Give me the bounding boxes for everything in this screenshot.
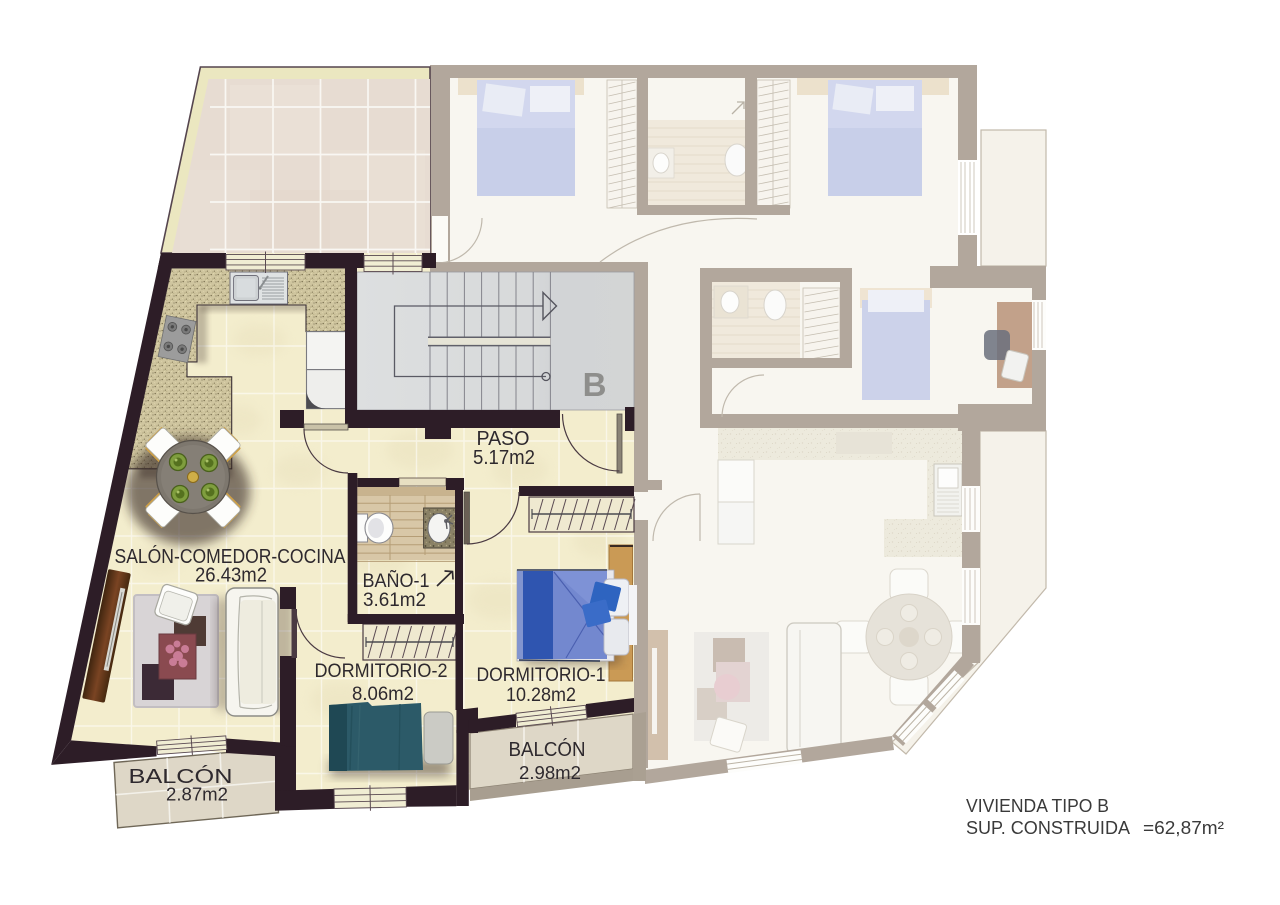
svg-text:DORMITORIO-2: DORMITORIO-2 [315, 661, 448, 682]
svg-text:26.43m2: 26.43m2 [195, 565, 267, 587]
svg-text:=62,87m²: =62,87m² [1143, 818, 1224, 838]
svg-text:3.61m2: 3.61m2 [363, 590, 426, 611]
svg-text:2.98m2: 2.98m2 [519, 762, 581, 783]
svg-text:8.06m2: 8.06m2 [352, 684, 414, 705]
svg-text:B: B [583, 366, 607, 403]
svg-text:BAÑO-1: BAÑO-1 [363, 570, 430, 592]
svg-text:5.17m2: 5.17m2 [473, 447, 535, 469]
svg-text:VIVIENDA TIPO B: VIVIENDA TIPO B [966, 796, 1109, 816]
svg-text:2.87m2: 2.87m2 [166, 784, 228, 805]
svg-text:10.28m2: 10.28m2 [506, 685, 576, 706]
svg-text:SUP. CONSTRUIDA: SUP. CONSTRUIDA [966, 818, 1130, 838]
svg-text:DORMITORIO-1: DORMITORIO-1 [477, 665, 606, 686]
svg-text:BALCÓN: BALCÓN [509, 738, 586, 761]
